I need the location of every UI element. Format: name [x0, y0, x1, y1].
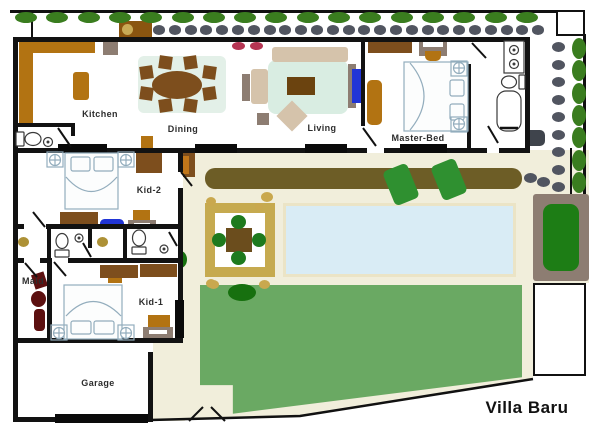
stepping-stone	[524, 173, 537, 183]
stepping-stone	[552, 95, 565, 105]
dining-chair	[183, 55, 198, 70]
cushion	[232, 42, 245, 50]
wall	[13, 258, 24, 263]
stepping-stone	[390, 25, 402, 35]
stepping-stone	[469, 25, 481, 35]
stepping-stone	[358, 25, 370, 35]
maid-bench	[34, 309, 45, 331]
stepping-stone	[406, 25, 418, 35]
wall	[467, 64, 471, 148]
hedge-shrub	[265, 12, 287, 23]
side-table	[257, 113, 269, 125]
kitchen-island	[73, 72, 89, 100]
stepping-stone	[327, 25, 339, 35]
stepping-stone	[248, 25, 260, 35]
stepping-stone	[485, 25, 497, 35]
hedge-shrub	[15, 12, 37, 23]
room-label-kid2: Kid-2	[137, 185, 162, 195]
dining-chair	[158, 55, 173, 70]
floor-plan: Kitchen Dining Living Master-Bed Kid-2 K…	[0, 0, 600, 435]
dresser	[100, 265, 138, 278]
bath-mat	[97, 237, 108, 247]
wall	[68, 258, 183, 263]
dresser	[136, 153, 162, 173]
plan-title: Villa Baru	[485, 398, 568, 418]
room-label-kitchen: Kitchen	[82, 109, 118, 119]
hedge-shrub	[572, 60, 586, 81]
window	[305, 144, 347, 153]
stepping-stone	[552, 130, 565, 140]
hedge-shrub	[172, 12, 194, 23]
stepping-stone	[501, 25, 513, 35]
dining-chair	[139, 86, 154, 101]
wall	[525, 37, 530, 153]
stepping-stone	[374, 25, 386, 35]
hedge-shrub	[572, 150, 586, 171]
hedge-shrub	[109, 12, 131, 23]
tv	[352, 69, 361, 103]
stepping-stone	[516, 25, 528, 35]
stepping-stone	[216, 25, 228, 35]
hedge-shrub	[234, 12, 256, 23]
stepping-stone	[552, 42, 565, 52]
dining-table	[152, 71, 202, 99]
hedge-shrub	[453, 12, 475, 23]
bed-caption: BED ROOM FL 9.90	[82, 299, 104, 307]
wall	[148, 352, 153, 422]
hedge-shrub	[572, 172, 586, 193]
stepping-stone	[200, 25, 212, 35]
wall	[13, 37, 18, 153]
bed-caption-line: FL 9.90	[428, 89, 433, 102]
hedge-shrub	[328, 12, 350, 23]
stepping-stone	[295, 25, 307, 35]
hedge-shrub	[359, 12, 381, 23]
room-label-kid1: Kid-1	[139, 297, 164, 307]
desk-chair	[425, 51, 441, 61]
room-label-garage: Garage	[81, 378, 114, 388]
sofa	[272, 47, 348, 62]
wall	[46, 224, 183, 229]
wall	[13, 37, 530, 42]
window	[58, 144, 107, 153]
stepping-stone	[552, 77, 565, 87]
bed-caption: BED ROOM FL 9.90	[80, 186, 102, 194]
hedge-shrub	[572, 38, 586, 59]
stepping-stone	[422, 25, 434, 35]
stepping-stone	[532, 25, 544, 35]
hedge-shrub	[572, 127, 586, 148]
stepping-stone	[552, 112, 565, 122]
dining-chair	[202, 65, 217, 80]
kitchen-counter	[19, 39, 33, 123]
stove	[103, 42, 118, 55]
stepping-stone	[343, 25, 355, 35]
stepping-stone	[311, 25, 323, 35]
dresser-tab	[108, 278, 122, 283]
maid-seat	[31, 291, 46, 307]
wall	[13, 123, 75, 127]
wall	[88, 229, 92, 248]
bench	[367, 80, 382, 125]
stepping-stone	[153, 25, 165, 35]
dining-chair	[139, 65, 154, 80]
stepping-stone	[453, 25, 465, 35]
stepping-stone	[552, 60, 565, 70]
dresser	[368, 42, 412, 53]
dining-chair	[202, 86, 217, 101]
room-label-living: Living	[308, 123, 337, 133]
wall	[361, 42, 365, 126]
wall	[47, 263, 52, 343]
wall	[13, 338, 183, 343]
window	[175, 300, 184, 338]
hedge-shrub	[572, 83, 586, 104]
stepping-stone	[552, 182, 565, 192]
hedge-shrub	[422, 12, 444, 23]
hedge-shrub	[297, 12, 319, 23]
hedge-shrub	[140, 12, 162, 23]
hedge-shrub	[46, 12, 68, 23]
bed-caption: BED ROOM FL 9.90	[428, 85, 436, 107]
bath-mat	[18, 237, 29, 247]
dining-chair	[183, 98, 198, 113]
hedge-shrub	[485, 12, 507, 23]
wall	[178, 153, 183, 172]
bed-caption-line: FL 9.90	[86, 299, 99, 304]
bed-caption-line: FL 9.90	[84, 186, 97, 191]
stepping-stone	[437, 25, 449, 35]
stepping-stone	[552, 147, 565, 157]
dresser	[140, 264, 177, 277]
wall	[13, 153, 18, 422]
stepping-stone	[232, 25, 244, 35]
stepping-stone	[185, 25, 197, 35]
stepping-stone	[264, 25, 276, 35]
garage-door	[55, 414, 148, 423]
hedge-shrub	[516, 12, 538, 23]
hedge-shrub	[391, 12, 413, 23]
desk-top	[149, 330, 167, 334]
wall	[71, 127, 75, 136]
wall	[178, 188, 183, 229]
cushion	[250, 42, 263, 50]
stepping-stone	[552, 165, 565, 175]
hedge-shrub	[572, 105, 586, 126]
window	[400, 144, 447, 153]
stepping-stone	[169, 25, 181, 35]
hedge-shrub	[203, 12, 225, 23]
side-table	[242, 74, 250, 101]
hedge-shrub	[78, 12, 100, 23]
coffee-table	[287, 77, 315, 95]
desk	[148, 315, 170, 327]
desk-top	[423, 42, 443, 47]
wall	[13, 224, 24, 229]
stepping-stone	[279, 25, 291, 35]
room-label-maid: Maid	[22, 276, 44, 286]
window	[195, 144, 237, 153]
room-label-master: Master-Bed	[391, 133, 444, 143]
room-label-dining: Dining	[168, 124, 198, 134]
stepping-stone	[537, 177, 550, 187]
dining-chair	[158, 98, 173, 113]
sofa	[251, 69, 268, 104]
